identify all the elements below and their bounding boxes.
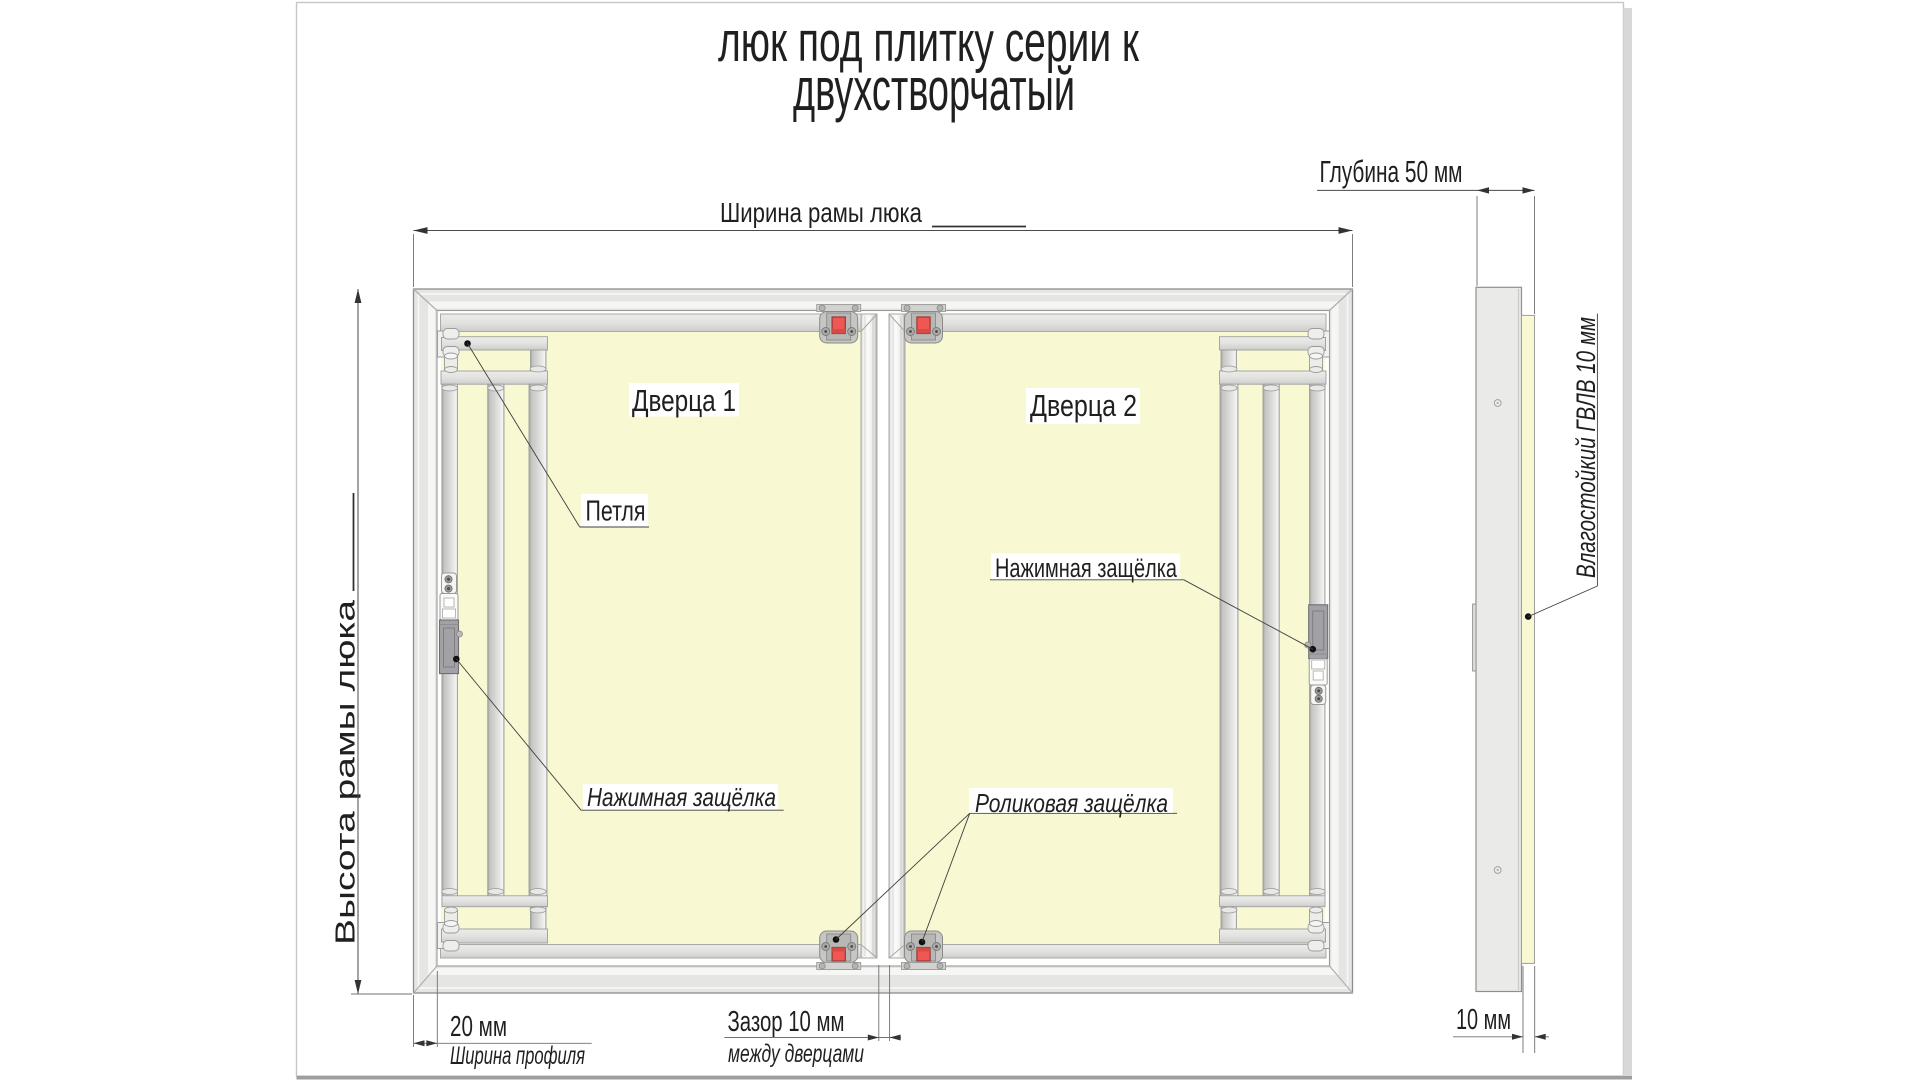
svg-text:Петля: Петля — [586, 496, 646, 528]
svg-text:20 мм: 20 мм — [450, 1011, 507, 1043]
svg-text:Влагостойкий ГВЛВ 10 мм: Влагостойкий ГВЛВ 10 мм — [1571, 317, 1601, 578]
svg-text:двухстворчатый: двухстворчатый — [793, 56, 1075, 123]
svg-text:Дверца 2: Дверца 2 — [1030, 388, 1137, 423]
svg-text:Роликовая защёлка: Роликовая защёлка — [975, 788, 1168, 818]
svg-text:между дверцами: между дверцами — [728, 1040, 864, 1068]
svg-text:Зазор 10 мм: Зазор 10 мм — [728, 1006, 845, 1038]
svg-text:Нажимная защёлка: Нажимная защёлка — [995, 553, 1178, 583]
svg-text:Ширина рамы люка: Ширина рамы люка — [720, 197, 922, 228]
svg-text:Глубина 50 мм: Глубина 50 мм — [1320, 154, 1463, 189]
svg-text:Дверца 1: Дверца 1 — [632, 383, 736, 418]
svg-text:Нажимная защёлка: Нажимная защёлка — [587, 782, 776, 812]
svg-text:10 мм: 10 мм — [1456, 1004, 1511, 1036]
svg-text:Высота рамы люка: Высота рамы люка — [330, 599, 361, 945]
svg-text:Ширина профиля: Ширина профиля — [450, 1042, 585, 1070]
